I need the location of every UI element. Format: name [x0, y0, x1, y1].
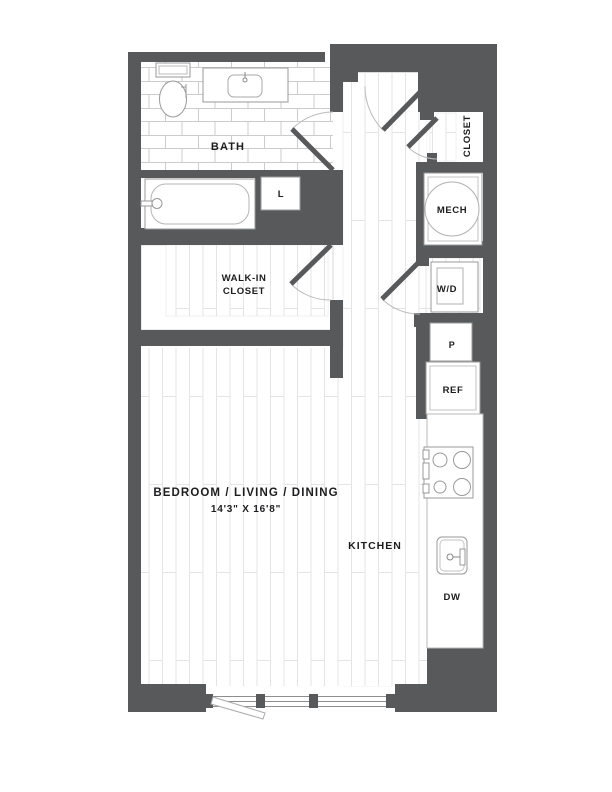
wall — [128, 228, 260, 245]
wall — [128, 330, 343, 346]
wall — [416, 168, 424, 245]
pantry-label: P — [449, 340, 456, 350]
wall — [416, 162, 497, 173]
kitchen-faucet-base — [460, 549, 465, 565]
toilet-bowl — [160, 81, 187, 117]
stove-burner — [433, 453, 447, 467]
bathtub-basin — [151, 184, 249, 224]
wall — [427, 648, 497, 712]
wall — [420, 112, 434, 120]
wall — [128, 52, 141, 712]
toilet-tank-lid — [159, 66, 187, 74]
stove-control — [423, 484, 429, 493]
wall — [395, 684, 428, 712]
floor-plan-page: BATH L WALK-IN CLOSET CLOSET MECH W/D P … — [0, 0, 612, 792]
bath-label: BATH — [211, 141, 245, 153]
tub-faucet — [152, 199, 162, 209]
wall — [128, 52, 325, 62]
sink-faucet — [243, 78, 247, 82]
washer-dryer-label: W/D — [437, 284, 457, 295]
kitchen-faucet — [447, 554, 453, 560]
window-mullion — [386, 694, 395, 708]
main-room-plank-floor — [141, 348, 427, 686]
refrigerator-label: REF — [443, 385, 464, 396]
window-wall — [204, 694, 395, 719]
stove-burner — [454, 452, 471, 469]
closet-label: CLOSET — [462, 115, 473, 157]
wall — [128, 684, 206, 712]
mech-label: MECH — [437, 205, 467, 216]
floor-plan: BATH L WALK-IN CLOSET CLOSET MECH W/D P … — [0, 0, 612, 792]
wall — [427, 153, 437, 162]
stove-control — [423, 450, 429, 459]
wall — [330, 170, 343, 245]
wall — [330, 44, 431, 72]
main-room-label: BEDROOM / LIVING / DINING — [153, 487, 338, 499]
walk-in-closet-label-line1: WALK-IN — [222, 273, 267, 284]
dishwasher-label: DW — [443, 592, 460, 603]
tub-faucet-stem — [141, 201, 152, 206]
window-mullion — [309, 694, 318, 708]
kitchen-label: KITCHEN — [348, 540, 402, 552]
main-room-dimensions: 14'3" X 16'8" — [211, 504, 281, 515]
window-mullion — [256, 694, 265, 708]
wall — [330, 62, 343, 112]
appliances — [423, 173, 483, 648]
wall — [418, 44, 497, 112]
walk-in-closet-label-line2: CLOSET — [223, 286, 265, 297]
stove-burner — [434, 481, 446, 493]
linen-label: L — [278, 189, 284, 200]
stove-control — [423, 463, 429, 479]
stove-burner — [454, 479, 471, 496]
